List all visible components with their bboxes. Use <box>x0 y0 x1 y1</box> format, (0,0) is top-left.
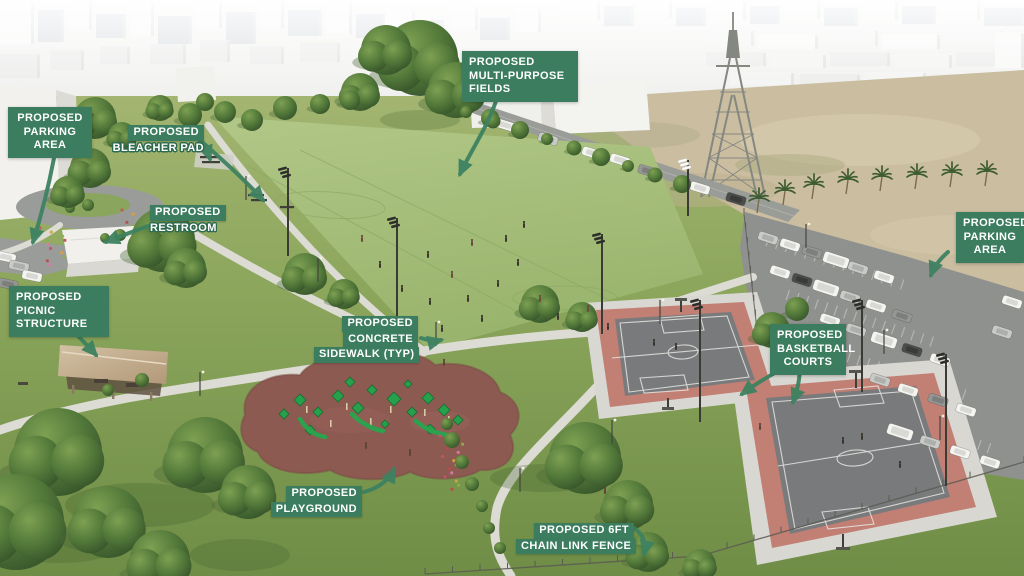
person <box>539 297 541 302</box>
flower <box>461 443 464 446</box>
flower <box>441 455 444 458</box>
tree <box>592 148 610 166</box>
flower <box>63 255 66 258</box>
person <box>842 439 844 444</box>
person <box>675 345 677 350</box>
label-line: PARKING <box>963 231 1017 245</box>
tree <box>302 266 327 291</box>
tree <box>273 96 297 120</box>
person <box>505 237 507 242</box>
flower <box>443 475 446 478</box>
streetlight-head <box>662 299 665 302</box>
tree <box>9 503 67 561</box>
label-line: AREA <box>15 139 85 153</box>
label-line: AREA <box>963 244 1017 258</box>
tree <box>183 260 207 284</box>
person <box>517 261 519 266</box>
label-basketball-courts: PROPOSED BASKETBALL COURTS <box>770 324 846 375</box>
label-picnic-structure: PROPOSED PICNIC STRUCTURE <box>9 286 109 337</box>
flower <box>445 447 448 450</box>
person <box>443 361 445 366</box>
tree <box>645 544 669 568</box>
shrub <box>465 477 479 491</box>
label-line: PROPOSED <box>128 125 204 141</box>
tree <box>340 90 360 110</box>
label-multipurpose-fields: PROPOSED MULTI-PURPOSE FIELDS <box>462 51 578 102</box>
tree <box>87 160 111 184</box>
person <box>607 325 609 330</box>
label-line: PROPOSED <box>777 329 839 343</box>
label-line: PROPOSED <box>15 112 85 126</box>
tree <box>342 288 360 306</box>
person <box>587 307 589 312</box>
person <box>861 435 863 440</box>
label-line: PROPOSED <box>150 205 226 221</box>
person <box>379 263 381 268</box>
playground-post <box>424 409 426 416</box>
playground-post <box>390 406 392 413</box>
tree <box>624 495 654 525</box>
playground-post <box>346 403 348 410</box>
tree <box>511 121 529 139</box>
person <box>759 425 761 430</box>
tree <box>214 101 236 123</box>
streetlight-head <box>320 257 323 260</box>
person <box>497 282 499 287</box>
streetlight-head <box>886 329 889 332</box>
shrub <box>483 522 495 534</box>
person <box>429 300 431 305</box>
streetlight-head <box>202 371 205 374</box>
label-line: PROPOSED <box>963 217 1017 231</box>
tree <box>648 168 663 183</box>
label-playground: PROPOSED PLAYGROUND <box>270 486 362 517</box>
flower <box>452 459 455 462</box>
label-line: PARKING <box>15 126 85 140</box>
person <box>467 297 469 302</box>
shrub <box>476 500 488 512</box>
label-line: FIELDS <box>469 83 571 97</box>
label-line: STRUCTURE <box>16 318 102 332</box>
flower <box>46 259 49 262</box>
label-line: BLEACHER PAD <box>113 141 204 157</box>
person <box>523 223 525 228</box>
flower <box>450 471 453 474</box>
tree <box>622 160 634 172</box>
shrub <box>102 384 114 396</box>
flower <box>125 221 128 224</box>
flower <box>61 235 64 238</box>
person <box>401 287 403 292</box>
shrub <box>441 418 453 430</box>
label-line: PROPOSED <box>469 56 571 70</box>
park-master-plan-rendering: PROPOSED PARKING AREA PROPOSED BLEACHER … <box>0 0 1024 576</box>
label-bleacher-pad: PROPOSED BLEACHER PAD <box>110 125 204 156</box>
tree <box>382 40 412 70</box>
label-line: SIDEWALK (TYP) <box>314 347 419 363</box>
streetlight-head <box>614 419 617 422</box>
person <box>899 463 901 468</box>
tree <box>241 109 263 131</box>
label-line: CHAIN LINK FENCE <box>516 539 636 555</box>
tree <box>310 94 330 114</box>
flower <box>132 213 135 216</box>
flower <box>60 251 63 254</box>
label-line: PROPOSED <box>286 486 362 502</box>
playground-post <box>330 420 332 427</box>
label-parking-area-left: PROPOSED PARKING AREA <box>8 107 92 158</box>
person <box>441 327 443 332</box>
shrub <box>494 542 506 554</box>
streetlight-head <box>522 467 525 470</box>
label-line: BASKETBALL <box>777 343 839 357</box>
flower <box>120 208 123 211</box>
label-chain-link-fence: PROPOSED 6FT CHAIN LINK FENCE <box>516 523 634 554</box>
tree-shadow <box>190 539 290 571</box>
shrub <box>82 199 94 211</box>
flower <box>50 231 53 234</box>
flower <box>438 434 441 437</box>
tree <box>460 106 472 118</box>
person <box>481 317 483 322</box>
person <box>604 489 606 494</box>
tree <box>158 103 174 119</box>
flower <box>63 239 66 242</box>
person <box>471 241 473 246</box>
flower <box>47 243 50 246</box>
tree <box>567 141 582 156</box>
person <box>557 315 559 320</box>
person <box>361 237 363 242</box>
label-line: MULTI-PURPOSE <box>469 70 571 84</box>
tree <box>51 434 104 487</box>
label-concrete-sidewalk: PROPOSED CONCRETE SIDEWALK (TYP) <box>314 316 418 363</box>
playground-post <box>306 406 308 413</box>
label-line: PICNIC <box>16 305 102 319</box>
tree <box>580 444 623 487</box>
flower <box>450 488 453 491</box>
person <box>451 273 453 278</box>
flower <box>457 451 460 454</box>
label-parking-area-right: PROPOSED PARKING AREA <box>956 212 1024 263</box>
label-line: PROPOSED <box>16 291 102 305</box>
person <box>409 451 411 456</box>
label-line: PROPOSED 6FT <box>534 523 634 539</box>
label-line: PROPOSED <box>342 316 418 332</box>
label-line: RESTROOM <box>150 221 217 237</box>
tree <box>66 186 85 205</box>
flower <box>448 467 451 470</box>
streetlight-head <box>942 415 945 418</box>
person <box>653 341 655 346</box>
label-line: PLAYGROUND <box>271 502 362 518</box>
person <box>427 253 429 258</box>
shrub <box>455 455 469 469</box>
streetlight-head <box>808 223 811 226</box>
playground-post <box>370 418 372 425</box>
streetlight-head <box>248 175 251 178</box>
tree <box>541 133 553 145</box>
streetlight-head <box>438 321 441 324</box>
flower <box>48 263 51 266</box>
tree <box>178 103 202 127</box>
shrub <box>135 373 149 387</box>
label-line: COURTS <box>777 356 839 370</box>
tree <box>580 311 598 329</box>
flower <box>455 480 458 483</box>
tree <box>357 84 380 107</box>
shrub <box>444 432 460 448</box>
tree <box>785 297 809 321</box>
label-line: CONCRETE <box>343 332 418 348</box>
flower <box>49 247 52 250</box>
label-restroom: PROPOSED RESTROOM <box>150 205 250 236</box>
flower <box>457 484 460 487</box>
person <box>365 444 367 449</box>
